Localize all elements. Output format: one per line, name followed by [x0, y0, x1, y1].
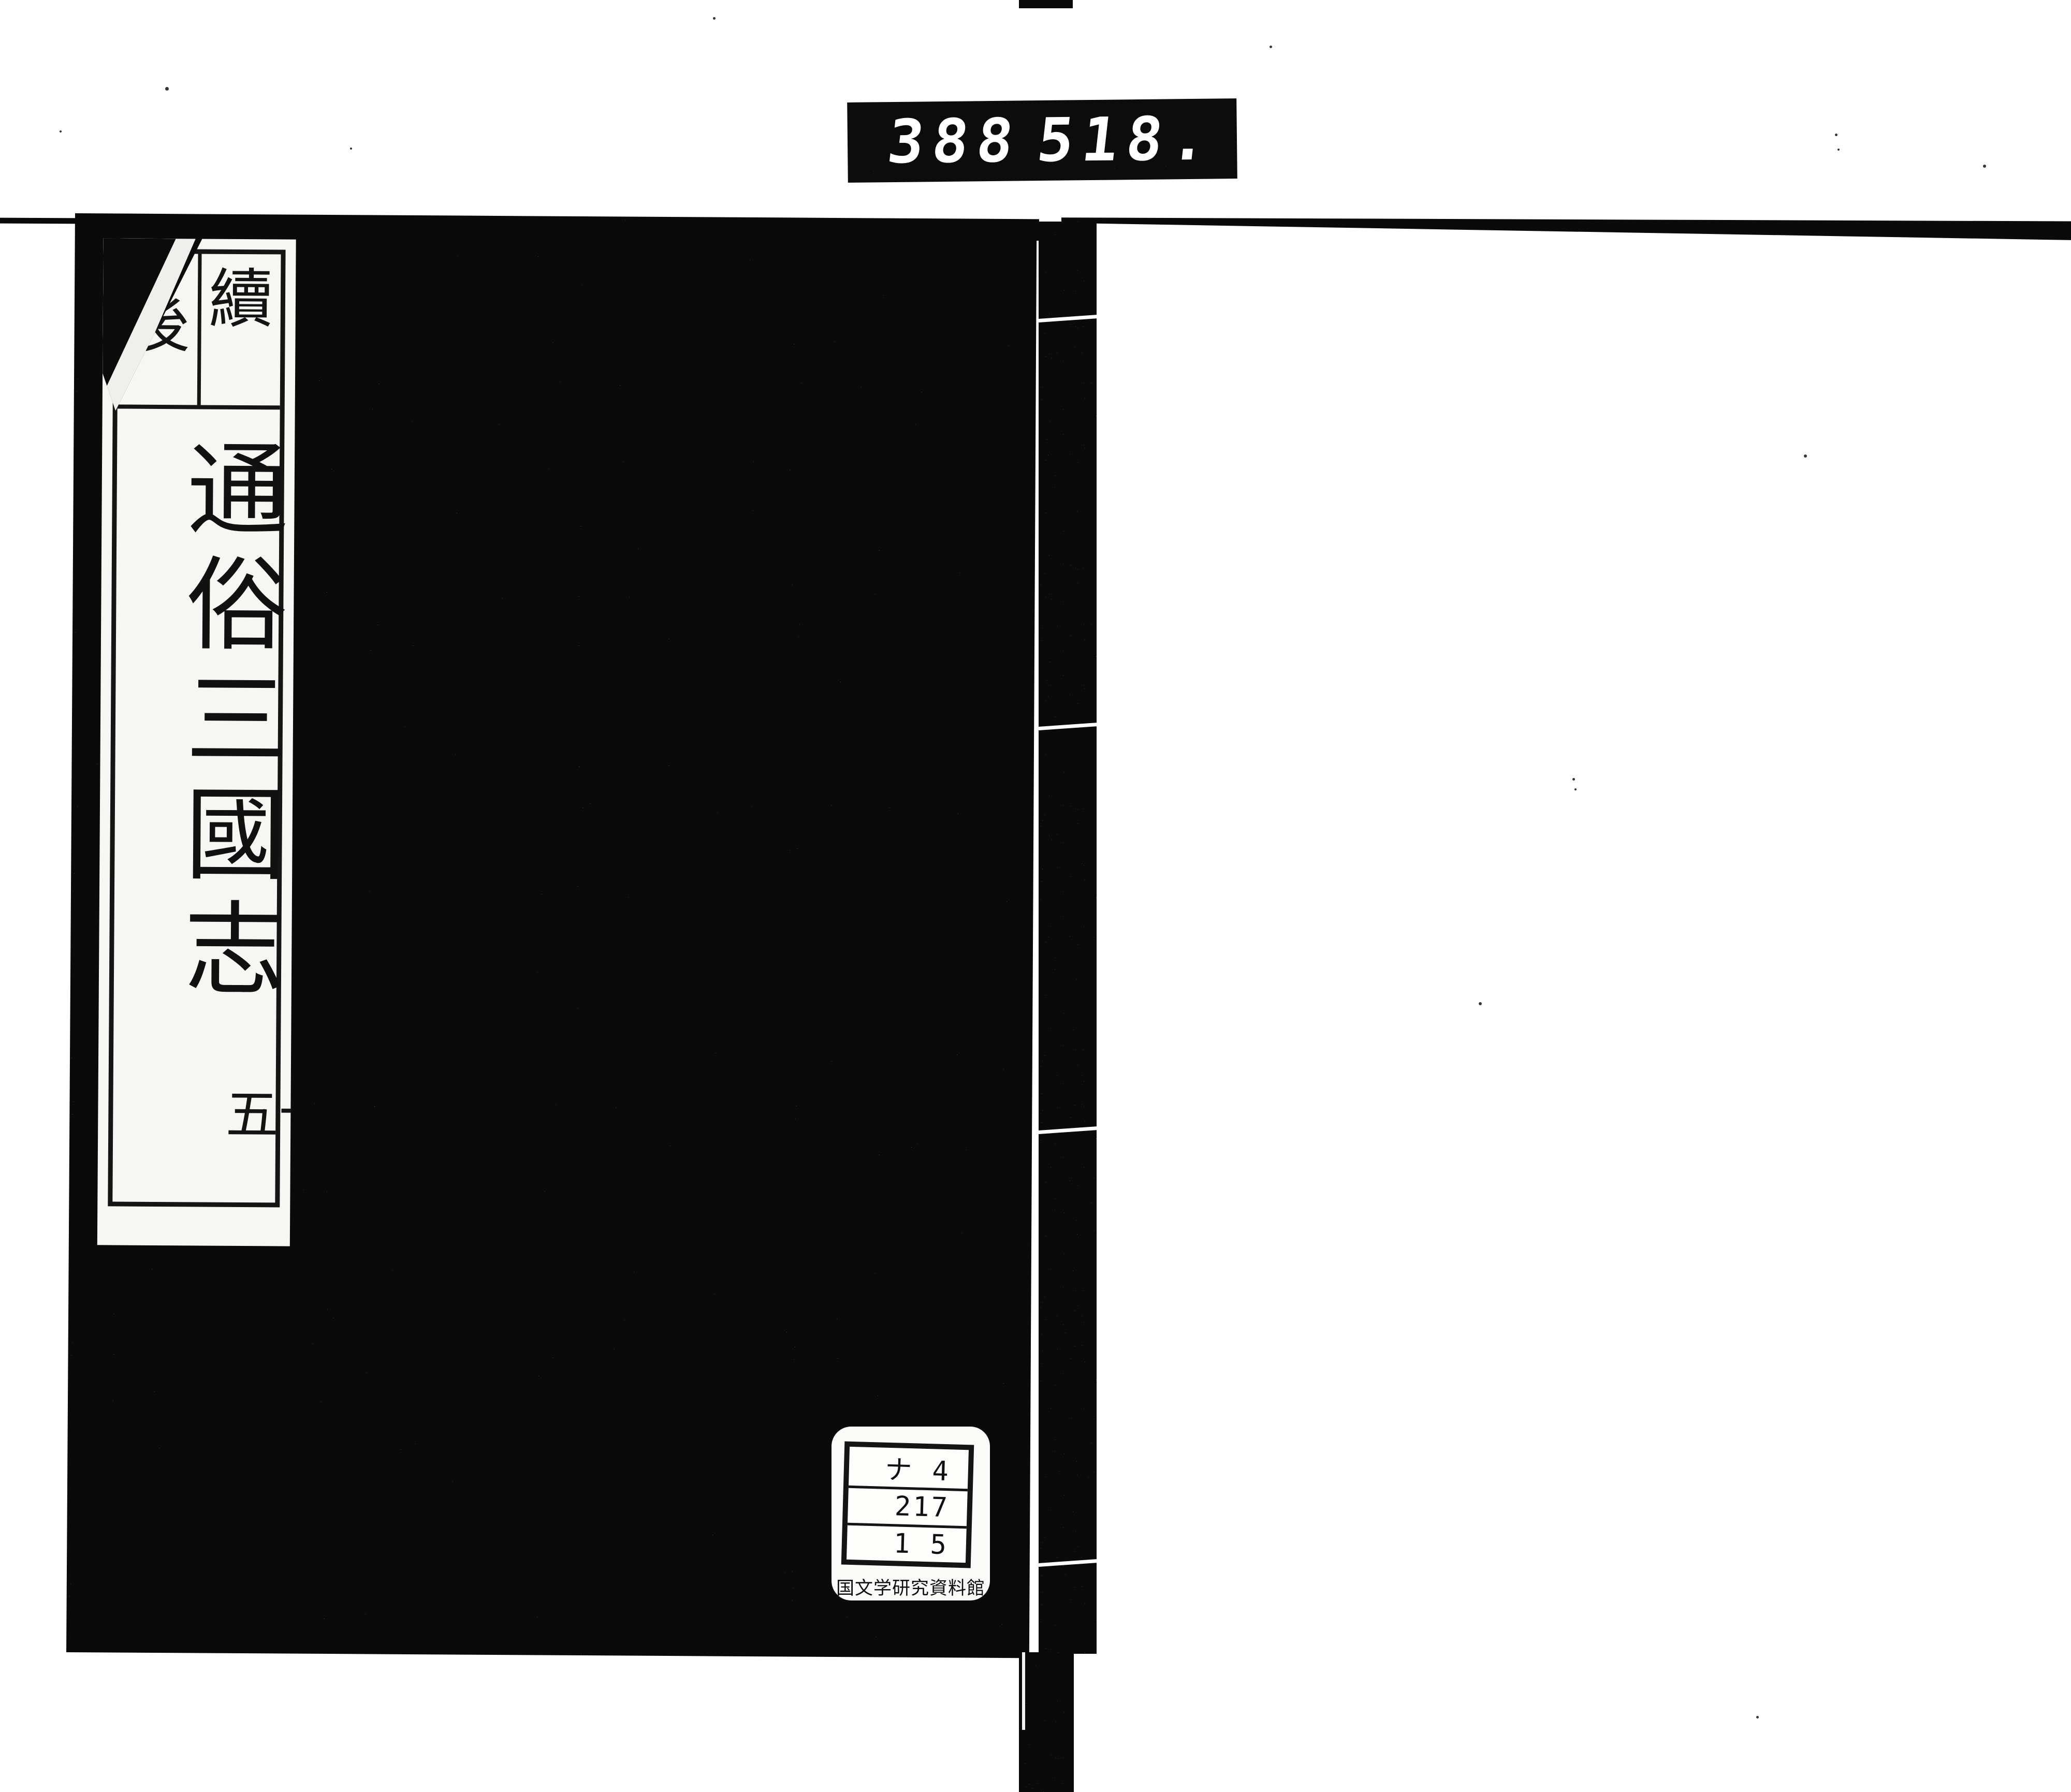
noise-speck — [1835, 134, 1837, 136]
spine-segment-gap — [1037, 723, 1100, 730]
noise-speck — [1574, 788, 1577, 790]
noise-speck — [165, 87, 169, 91]
noise-speck — [1270, 46, 1272, 48]
spine-segment-gap — [1037, 315, 1100, 322]
counter-digits-right: 518. — [1034, 109, 1218, 171]
spine-segment-gap — [1037, 1126, 1100, 1134]
call-number-row-3: 1 5 — [847, 1525, 967, 1563]
spine-noise-texture — [1039, 222, 1097, 1654]
frame-counter: 388 518. — [847, 98, 1237, 183]
spine-strip-upper — [1039, 222, 1097, 1654]
title-slip-frame: 後 續 通俗三國志 十五 — [108, 248, 285, 1207]
spine-noise-texture — [1019, 1652, 1074, 1792]
noise-speck — [1572, 778, 1575, 781]
title-slip-volume-number: 十五 — [220, 1086, 296, 1203]
page-edge-wedge-right — [1061, 214, 2071, 241]
noise-speck — [1756, 1716, 1759, 1718]
call-number-label: ナ 4 217 1 5 国文学研究資料館 — [832, 1427, 990, 1600]
scanned-page: 388 518. 後 續 通俗三國志 十五 — [0, 0, 2071, 1792]
title-slip-header-right-char: 續 — [197, 254, 281, 405]
institution-name: 国文学研究資料館 — [832, 1574, 990, 1600]
title-slip: 後 續 通俗三國志 十五 — [97, 238, 296, 1246]
noise-speck — [1983, 165, 1986, 168]
noise-speck — [60, 130, 62, 133]
noise-speck — [1804, 454, 1807, 458]
noise-speck — [1837, 149, 1840, 151]
counter-digits-left: 388 — [885, 111, 1025, 172]
spine-strip-hairline — [1022, 1652, 1025, 1730]
page-edge-line-left — [0, 218, 79, 224]
noise-speck — [350, 148, 352, 150]
top-edge-mark — [1019, 0, 1073, 8]
noise-speck — [1479, 1002, 1482, 1005]
call-number-row-1: ナ 4 — [849, 1447, 969, 1491]
title-slip-main-title: 通俗三國志 — [114, 436, 280, 1011]
spine-strip-lower — [1019, 1652, 1074, 1792]
spine-segment-gap — [1037, 1559, 1100, 1567]
call-number-table: ナ 4 217 1 5 — [841, 1442, 974, 1568]
noise-speck — [713, 17, 716, 20]
call-number-row-2: 217 — [848, 1488, 968, 1529]
